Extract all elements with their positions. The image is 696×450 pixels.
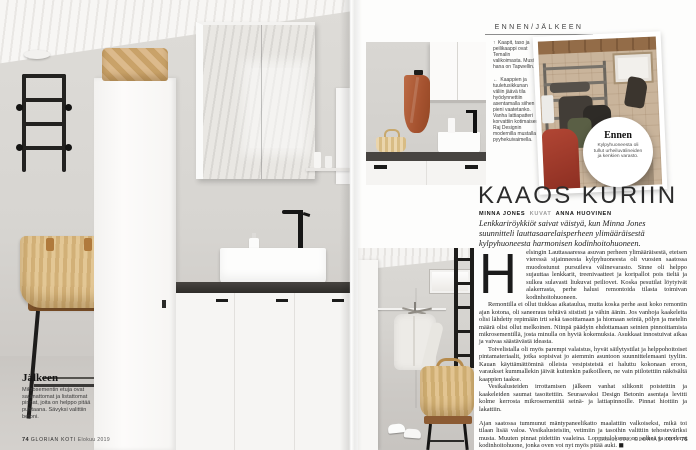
basket-handle xyxy=(84,238,92,251)
after-room-photo: Jälkeen Mikrosementin etuja ovat saumatt… xyxy=(0,0,350,450)
ladder-rung xyxy=(454,282,474,285)
drawer-seam xyxy=(426,161,427,185)
radiator-rung xyxy=(22,146,66,150)
detail-photo xyxy=(366,42,486,185)
corner-basket xyxy=(420,366,474,418)
badge-text: Kylpyhuoneesta oli tullut urheiluvälinei… xyxy=(593,143,643,160)
base-cabinets xyxy=(176,293,350,450)
caption-1-text: Kaapit, taso ja peilikaappi ovat Temalin… xyxy=(493,40,537,70)
ceiling-lamp xyxy=(24,50,50,59)
wall-shelf xyxy=(306,168,350,171)
after-caption: Jälkeen Mikrosementin etuja ovat saumatt… xyxy=(22,372,102,421)
detail-faucet-pipe xyxy=(473,110,477,133)
radiator-bracket xyxy=(65,104,72,111)
right-page-number: 75 xyxy=(681,437,688,443)
jacket-placket xyxy=(413,316,415,366)
badge-title: Ennen xyxy=(583,130,653,141)
body-paragraph: Vesikalusteiden irrottamisen jälkeen van… xyxy=(479,383,687,413)
wall-boots xyxy=(624,76,649,109)
mirror-cabinet xyxy=(196,22,315,179)
corner-cabinet xyxy=(358,260,378,450)
mirror-reflection xyxy=(250,68,302,148)
ladder-rung xyxy=(454,306,474,309)
mirror-seam xyxy=(261,25,262,179)
towel-radiator xyxy=(16,74,72,176)
vessel-sink xyxy=(220,248,326,284)
mirror-seam xyxy=(457,42,458,100)
corner-stool-bar xyxy=(430,440,464,442)
hanger-hook xyxy=(414,302,416,311)
cabinet-seam xyxy=(294,293,295,450)
photo-credit-label: KUVAT xyxy=(530,211,552,217)
ladder-rung xyxy=(454,258,474,261)
cabinet-handle xyxy=(332,299,344,302)
corner-ladder xyxy=(446,248,474,368)
ennen-badge: Ennen Kylpyhuoneesta oli tullut urheiluv… xyxy=(583,117,653,187)
issue-label: Elokuu 2019 xyxy=(600,437,632,443)
drawer-handle xyxy=(374,165,387,169)
ladder-rung xyxy=(454,354,474,357)
cabinet-seam xyxy=(234,293,235,450)
sneaker xyxy=(388,423,406,434)
shoe-pile xyxy=(550,81,590,93)
right-page: ENNEN/JÄLKEEN xyxy=(350,0,696,450)
rack-shelf xyxy=(543,65,606,71)
shelf-bottle xyxy=(325,156,332,168)
corner-stool-seat xyxy=(424,416,472,424)
body-paragraph: Toivelistalla oli myös parempi valaistus… xyxy=(479,346,687,383)
detail-drawers xyxy=(366,161,486,185)
radiator-bracket xyxy=(16,104,23,111)
white-towel xyxy=(541,95,554,123)
right-folio: Elokuu 2019 GLORIAN KOTI 75 xyxy=(600,437,688,443)
byline: MINNA JONES KUVAT ANNA HUOVINEN xyxy=(479,211,612,217)
faucet-lever xyxy=(303,212,311,217)
hanging-jacket xyxy=(394,314,436,370)
ladder-rung xyxy=(454,330,474,333)
author-name: MINNA JONES xyxy=(479,211,525,217)
radiator-rung xyxy=(22,122,66,126)
radiator-bracket xyxy=(65,144,72,151)
magazine-spread: Jälkeen Mikrosementin etuja ovat saumatt… xyxy=(0,0,696,450)
kicker-label: ENNEN/JÄLKEEN xyxy=(485,24,594,35)
basket-handle xyxy=(46,238,54,251)
detail-bottle xyxy=(448,118,455,133)
radiator-rung xyxy=(22,74,66,78)
article-body: Helsingin Lauttasaaressa asuvan perheen … xyxy=(479,249,687,450)
cabinet-knob xyxy=(162,300,166,308)
corner-stool-leg xyxy=(426,424,432,450)
body-paragraph: Remontilla ei ollut tiukkaa aikataulua, … xyxy=(479,301,687,346)
shelf-bottle xyxy=(314,152,321,168)
red-garment xyxy=(542,128,581,190)
countertop xyxy=(176,282,350,293)
article-title: KAAOS KURIIN xyxy=(478,182,678,210)
body-paragraph-text: elsingin Lauttasaaressa asuvan perheen y… xyxy=(526,249,687,301)
body-paragraph: Ajan saatossa tummunut mäntypaneelikatto… xyxy=(479,420,687,450)
tall-cabinet xyxy=(94,78,176,450)
after-caption-text: Mikrosementin etuja ovat saumattomat ja … xyxy=(22,387,102,421)
radiator-rung xyxy=(22,98,66,102)
hanging-towel xyxy=(404,75,430,133)
detail-counter xyxy=(366,152,486,161)
cabinet-handle xyxy=(276,299,288,302)
magazine-name: GLORIAN KOTI xyxy=(31,437,76,443)
cabinet-underside xyxy=(430,100,486,103)
sneaker xyxy=(404,428,422,438)
drawer-handle xyxy=(465,165,478,169)
corner-photo xyxy=(358,248,474,450)
dropcap: H xyxy=(479,251,517,298)
after-caption-title: Jälkeen xyxy=(22,372,102,384)
left-folio: 74 GLORIAN KOTI Elokuu 2019 xyxy=(22,437,110,443)
left-page: Jälkeen Mikrosementin etuja ovat saumatt… xyxy=(0,0,350,450)
detail-mirror-cabinet xyxy=(430,42,486,100)
cabinet-handle xyxy=(216,299,228,302)
towel-fold xyxy=(410,77,419,123)
caption-2-text: Kaappien ja tuuletusikkunan väliin jäävä… xyxy=(493,77,538,143)
photographer-name: ANNA HUOVINEN xyxy=(556,211,612,217)
left-page-number: 74 xyxy=(22,437,29,443)
radiator-bracket xyxy=(16,144,23,151)
basket-on-cabinet xyxy=(102,48,168,81)
magazine-name: GLORIAN KOTI xyxy=(634,437,679,443)
detail-sink xyxy=(438,132,480,153)
caption-2: ← Kaappien ja tuuletusikkunan väliin jää… xyxy=(493,77,540,143)
wood-ceiling xyxy=(538,36,656,54)
issue-label: Elokuu 2019 xyxy=(78,437,110,443)
corner-stool-leg xyxy=(463,424,469,450)
body-paragraph: Helsingin Lauttasaaressa asuvan perheen … xyxy=(479,249,687,301)
small-basket xyxy=(376,137,406,152)
